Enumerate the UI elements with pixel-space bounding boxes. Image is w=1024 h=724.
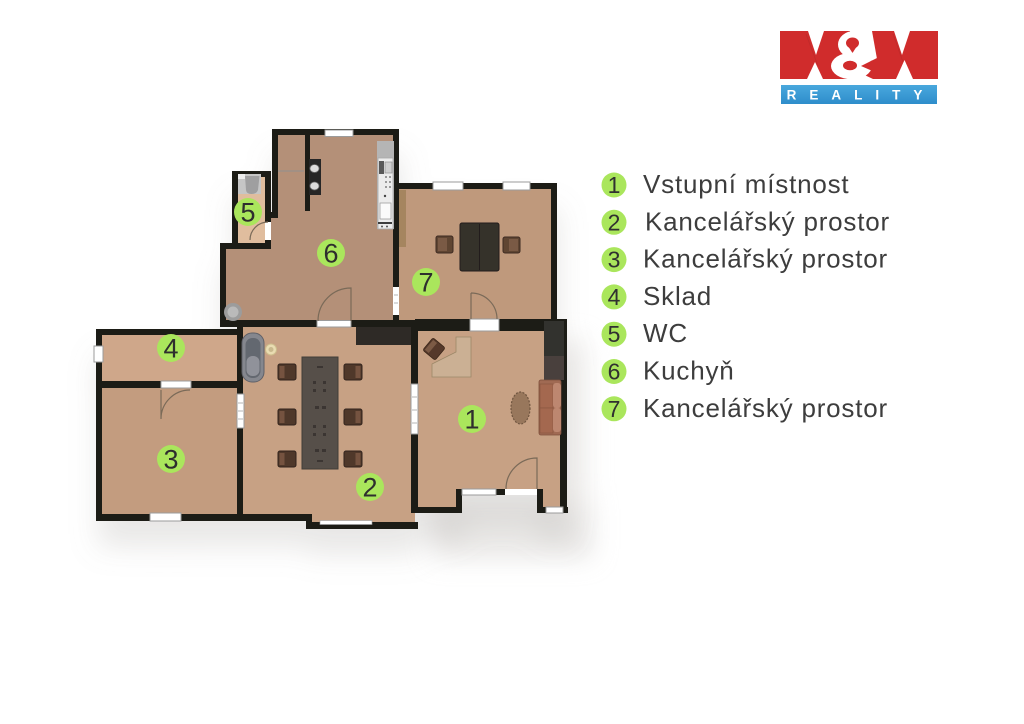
svg-text:1: 1 <box>464 405 479 435</box>
svg-text:7: 7 <box>608 396 621 422</box>
svg-text:2: 2 <box>608 209 621 235</box>
svg-text:Kancelářský prostor: Kancelářský prostor <box>643 393 888 423</box>
svg-text:7: 7 <box>418 268 433 298</box>
svg-text:3: 3 <box>163 445 178 475</box>
svg-text:6: 6 <box>323 239 338 269</box>
svg-text:Kancelářský prostor: Kancelářský prostor <box>645 206 890 236</box>
svg-text:4: 4 <box>163 334 178 364</box>
svg-text:3: 3 <box>608 247 621 273</box>
svg-text:Sklad: Sklad <box>643 281 712 311</box>
svg-text:REALITY: REALITY <box>787 88 936 103</box>
svg-text:4: 4 <box>608 284 621 310</box>
svg-text:2: 2 <box>362 473 377 503</box>
svg-text:5: 5 <box>240 198 255 228</box>
svg-text:6: 6 <box>608 359 621 385</box>
svg-text:Vstupní místnost: Vstupní místnost <box>643 169 849 199</box>
svg-text:5: 5 <box>608 321 621 347</box>
svg-text:Kancelářský prostor: Kancelářský prostor <box>643 244 888 274</box>
svg-text:Kuchyň: Kuchyň <box>643 356 735 386</box>
svg-text:1: 1 <box>608 172 621 198</box>
svg-text:WC: WC <box>643 318 688 348</box>
